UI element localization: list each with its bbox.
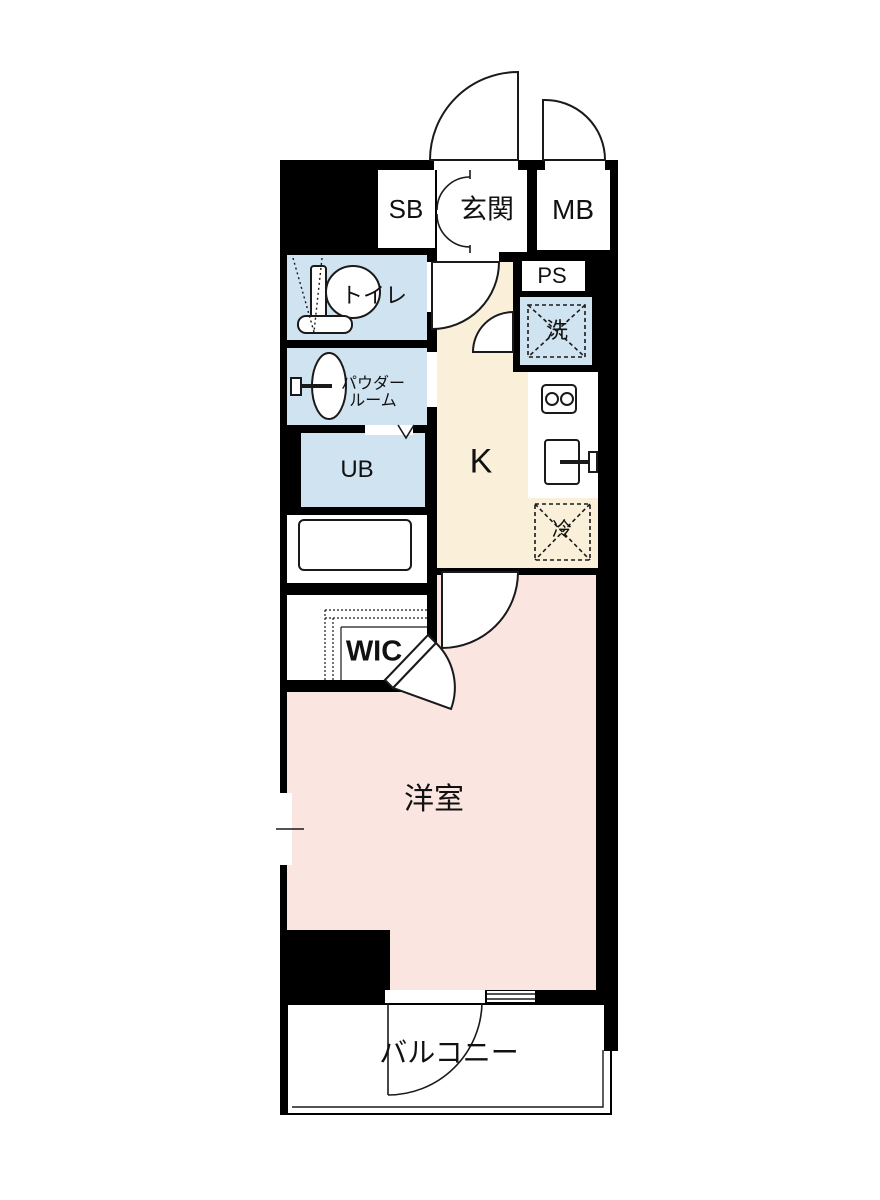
mb-door-gap <box>545 160 605 170</box>
bath-tub-room <box>287 515 427 583</box>
label-mb: MB <box>552 195 594 225</box>
entrance-door-swing-icon <box>430 72 518 160</box>
hall-kitchen-floor <box>437 262 513 568</box>
label-genkan: 玄関 <box>460 195 514 224</box>
mb-door-swing-icon <box>543 100 605 160</box>
genkan-hall-gap <box>437 252 499 262</box>
label-toilet: トイレ <box>341 284 407 308</box>
label-sb: SB <box>389 195 424 223</box>
balcony-door-gap <box>385 990 485 1003</box>
label-balcony: バルコニー <box>379 1038 518 1068</box>
toilet-door-gap <box>427 262 437 312</box>
label-wic: WIC <box>346 636 402 667</box>
label-powder: パウダー ルーム <box>341 376 405 411</box>
powder-door-gap <box>427 352 437 407</box>
label-ub: UB <box>340 457 373 483</box>
kitchen-floor-strip <box>513 372 528 568</box>
bedroom-west-window <box>280 793 292 865</box>
label-powder-line2: ルーム <box>341 393 405 410</box>
ub-door-gap <box>365 425 413 435</box>
label-kitchen: K <box>470 444 493 481</box>
entrance-door-gap <box>434 160 518 170</box>
label-ps: PS <box>537 264 566 288</box>
label-fridge: 冷 <box>552 520 572 542</box>
balcony-wall-left <box>280 1003 288 1115</box>
floorplan-canvas: SB 玄関 MB PS 洗 トイレ パウダー ルーム UB K 冷 WIC 洋室… <box>0 0 880 1200</box>
label-powder-line1: パウダー <box>341 376 405 393</box>
label-washer: 洗 <box>546 319 568 343</box>
balcony-wall-right <box>604 1003 618 1051</box>
wall-pillar-block <box>287 930 390 1003</box>
balcony-window-gap <box>487 991 535 1002</box>
label-bedroom: 洋室 <box>404 784 464 816</box>
kitchen-counter <box>528 372 598 498</box>
